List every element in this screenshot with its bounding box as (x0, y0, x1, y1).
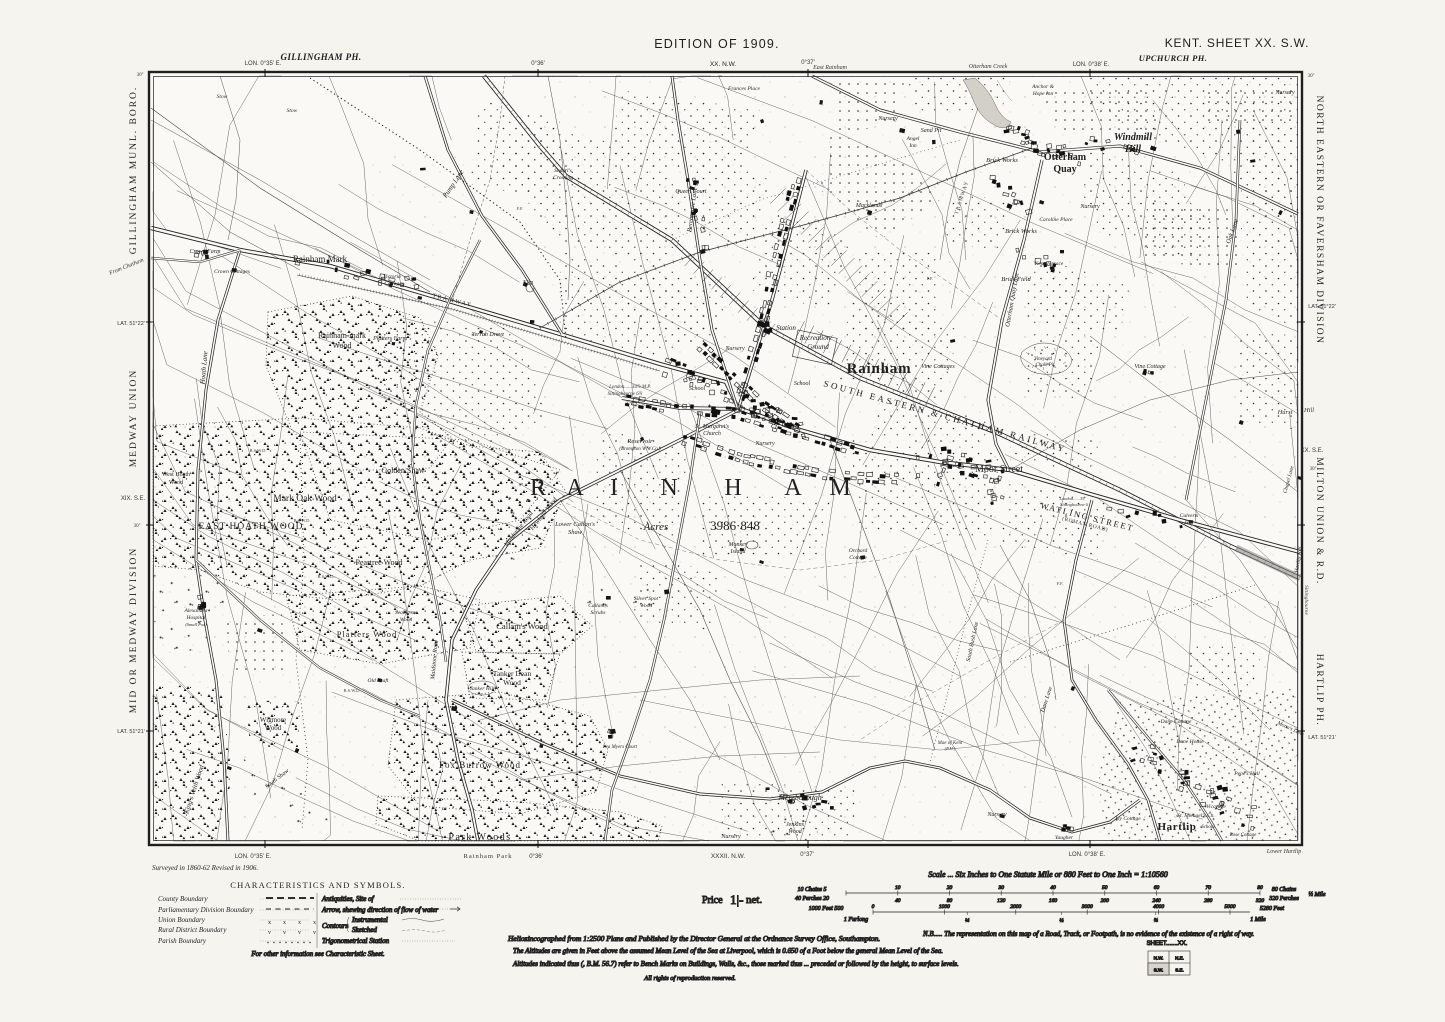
svg-text:4000: 4000 (1153, 903, 1164, 910)
svg-text:Hill: Hill (1184, 520, 1194, 526)
svg-text:Rainham-mark: Rainham-mark (318, 331, 366, 340)
svg-text:Rainham Park: Rainham Park (463, 853, 512, 860)
svg-text:N: N (660, 475, 677, 501)
svg-text:EDITION OF 1909.: EDITION OF 1909. (654, 37, 779, 51)
svg-text:Parish Boundary: Parish Boundary (157, 937, 207, 945)
svg-text:Hospital: Hospital (186, 615, 206, 621)
svg-text:Lea Myers Court: Lea Myers Court (602, 745, 638, 750)
svg-text:Rainham Mark: Rainham Mark (293, 254, 348, 264)
svg-text:Tanker Hill: Tanker Hill (469, 686, 494, 692)
svg-text:Hartlip: Hartlip (1157, 821, 1196, 833)
svg-text:Tanker Dean: Tanker Dean (493, 669, 532, 678)
svg-text:Island: Island (730, 549, 747, 555)
svg-text:XXXII. N.W.: XXXII. N.W. (711, 853, 746, 860)
svg-text:Scale ... Six Inches to One St: Scale ... Six Inches to One Statute Mile… (928, 870, 1168, 879)
svg-text:2000: 2000 (1010, 904, 1021, 910)
svg-text:Monkey: Monkey (728, 542, 748, 548)
svg-text:H: H (724, 475, 741, 501)
svg-text:Nursery: Nursery (720, 834, 741, 840)
svg-text:Trigonometrical Station: Trigonometrical Station (322, 937, 390, 945)
svg-text:XIX. S.E.: XIX. S.E. (121, 496, 146, 502)
svg-text:MILTON UNION & R.D.: MILTON UNION & R.D. (1314, 457, 1324, 584)
svg-text:Old Shaft: Old Shaft (368, 677, 389, 684)
svg-text:280: 280 (1204, 898, 1213, 904)
svg-text:x: x (283, 920, 286, 926)
svg-text:EAST HOATH WOOD: EAST HOATH WOOD (199, 522, 304, 532)
svg-text:Contours: Contours (322, 922, 348, 930)
svg-text:½ Mile: ½ Mile (1309, 891, 1326, 898)
svg-text:30'': 30'' (134, 524, 141, 529)
svg-text:Parliamentary Division Boundar: Parliamentary Division Boundary (157, 906, 255, 914)
svg-text:Nursery: Nursery (1274, 90, 1295, 96)
svg-text:Union Boundary: Union Boundary (158, 916, 206, 924)
svg-text:Wigmore: Wigmore (260, 716, 286, 724)
svg-text:Chalk Pit: Chalk Pit (1035, 363, 1055, 368)
svg-text:v: v (268, 930, 271, 936)
svg-text:The Altitudes are given in Fee: The Altitudes are given in Feet above th… (513, 947, 943, 955)
svg-text:1000 Feet 500: 1000 Feet 500 (809, 906, 844, 912)
svg-text:Reservoir: Reservoir (626, 438, 653, 445)
svg-text:Surveyed in 1860-62 Revised: Surveyed in 1860-62 Revised in 1906. (152, 864, 258, 872)
svg-text:Nursery: Nursery (754, 441, 775, 447)
svg-text:F.F.: F.F. (1057, 581, 1064, 586)
svg-text:Scrubs: Scrubs (591, 610, 606, 616)
svg-text:¾: ¾ (1154, 918, 1158, 924)
svg-text:LON. 0°38' E.: LON. 0°38' E. (1073, 62, 1110, 68)
svg-text:SHEET.......XX.: SHEET.......XX. (1147, 941, 1188, 947)
svg-text:Yaugher: Yaugher (1055, 835, 1074, 841)
svg-text:200: 200 (1101, 898, 1110, 904)
svg-text:0°37': 0°37' (800, 852, 814, 858)
svg-text:Wood: Wood (400, 617, 413, 623)
svg-text:Stow: Stow (287, 108, 298, 114)
svg-text:40: 40 (895, 897, 901, 904)
svg-text:B.S.W.D.: B.S.W.D. (343, 688, 360, 693)
svg-text:net.: net. (746, 894, 762, 906)
svg-text:Brick Works: Brick Works (986, 157, 1018, 164)
svg-text:Inn: Inn (908, 143, 917, 149)
svg-text:80 Chains: 80 Chains (1272, 887, 1297, 893)
svg-text:For other information see Char: For other information see Characteristic… (250, 950, 385, 958)
svg-text:Rainham: Rainham (847, 361, 912, 377)
svg-text:Hurst: Hurst (1277, 409, 1293, 416)
svg-text:Lower Hartlip: Lower Hartlip (1266, 849, 1302, 855)
svg-text:Seabarres: Seabarres (395, 610, 417, 616)
svg-text:A: A (784, 475, 802, 501)
svg-text:Wood: Wood (503, 678, 521, 687)
svg-text:XX. S.E.: XX. S.E. (1301, 448, 1324, 454)
svg-text:B.S.W.D.: B.S.W.D. (317, 574, 334, 579)
svg-text:London......35: London......35 (1058, 496, 1085, 501)
svg-text:½: ½ (1059, 917, 1063, 924)
svg-text:Nursery: Nursery (1079, 204, 1100, 210)
svg-text:School: School (794, 381, 811, 387)
svg-text:Sittingbourne 6¾: Sittingbourne 6¾ (608, 392, 643, 397)
svg-text:Moor Street: Moor Street (975, 464, 1023, 475)
svg-text:Wood: Wood (265, 724, 282, 732)
svg-text:1|-: 1|- (730, 892, 743, 907)
svg-text:Station: Station (776, 324, 796, 332)
svg-text:5000: 5000 (1225, 904, 1236, 910)
svg-text:Platters Wood: Platters Wood (337, 629, 398, 639)
svg-text:Wood: Wood (640, 603, 653, 609)
svg-text:70: 70 (1205, 885, 1211, 891)
svg-text:St. Michael's Ch.: St. Michael's Ch. (1177, 813, 1215, 819)
svg-text:320 Perches: 320 Perches (1268, 896, 1299, 902)
svg-text:Antiquities, Site of: Antiquities, Site of (321, 895, 375, 903)
svg-text:¼: ¼ (965, 918, 969, 924)
svg-text:1 Mile: 1 Mile (1250, 917, 1266, 923)
svg-text:Victoria: Victoria (383, 274, 401, 280)
svg-text:30'': 30'' (137, 73, 144, 78)
svg-text:Stow: Stow (217, 94, 228, 100)
svg-text:Silver Spot: Silver Spot (634, 596, 658, 602)
svg-text:School: School (689, 386, 706, 392)
svg-text:Crown Farm: Crown Farm (190, 249, 222, 255)
svg-text:160: 160 (1049, 898, 1058, 904)
svg-text:Fox Burrow Wood: Fox Burrow Wood (439, 760, 521, 770)
svg-text:LAT. 51°21': LAT. 51°21' (117, 729, 145, 735)
svg-text:40 Perches 20: 40 Perches 20 (795, 895, 829, 902)
svg-text:LON. 0°38' E.: LON. 0°38' E. (1069, 852, 1106, 858)
svg-text:Dane Cottage: Dane Cottage (1160, 719, 1192, 725)
svg-text:240: 240 (1152, 897, 1161, 904)
svg-text:Anchor &: Anchor & (1031, 84, 1055, 90)
svg-text:320: 320 (1255, 898, 1265, 904)
svg-text:Cottage: Cottage (849, 555, 867, 561)
svg-text:LON. 0°35' E.: LON. 0°35' E. (235, 854, 272, 860)
svg-text:N.B..... The representation on: N.B..... The representation on this map … (922, 930, 1254, 938)
svg-text:Sketched: Sketched (352, 926, 377, 934)
svg-text:MEDWAY UNION: MEDWAY UNION (129, 369, 139, 468)
svg-text:County Boundary: County Boundary (158, 895, 208, 903)
svg-text:Wood: Wood (169, 480, 183, 486)
svg-text:Jenkins: Jenkins (786, 822, 805, 828)
svg-text:F.F.: F.F. (517, 206, 524, 211)
svg-text:30: 30 (997, 885, 1004, 891)
svg-text:Price: Price (702, 895, 723, 906)
svg-text:v: v (298, 930, 301, 936)
svg-text:Vine Cottages: Vine Cottages (921, 364, 955, 370)
svg-text:Culverts: Culverts (1180, 513, 1199, 519)
svg-text:School: School (1201, 825, 1215, 830)
svg-text:Rural District Boundary: Rural District Boundary (157, 926, 227, 934)
svg-text:v: v (283, 930, 286, 936)
svg-text:0°36': 0°36' (531, 61, 545, 67)
svg-text:1000: 1000 (939, 904, 950, 910)
svg-text:Church: Church (703, 431, 721, 437)
svg-text:10: 10 (895, 885, 901, 891)
svg-text:Snaerl's: Snaerl's (554, 168, 572, 174)
svg-text:West Hoath: West Hoath (162, 472, 190, 478)
svg-text:Windmill: Windmill (1114, 132, 1152, 143)
svg-text:Heliozincographed from 1:2500: Heliozincographed from 1:2500 Plans and … (507, 934, 880, 943)
svg-text:60: 60 (1154, 885, 1160, 891)
svg-text:GILLINGHAM MUNL. BORO.: GILLINGHAM MUNL. BORO. (129, 86, 139, 255)
svg-text:Queen Court: Queen Court (675, 189, 706, 195)
svg-text:Mereborough: Mereborough (777, 793, 821, 802)
svg-text:30'': 30'' (1308, 74, 1315, 79)
svg-text:5280 Feet: 5280 Feet (1260, 906, 1284, 912)
svg-text:80: 80 (1257, 885, 1263, 891)
svg-text:(P.H.): (P.H.) (945, 746, 956, 751)
svg-text:Quay: Quay (1053, 164, 1076, 175)
svg-text:40: 40 (1050, 884, 1056, 891)
svg-text:A: A (566, 475, 584, 501)
svg-text:Peartree Wood: Peartree Wood (356, 558, 403, 567)
svg-text:MID OR MEDWAY DIVISION: MID OR MEDWAY DIVISION (129, 547, 139, 714)
svg-text:Caroline Place: Caroline Place (1039, 217, 1073, 223)
svg-text:Vicarage: Vicarage (1206, 804, 1226, 810)
svg-text:50: 50 (1102, 885, 1108, 891)
svg-text:Vineyard: Vineyard (1034, 357, 1052, 362)
svg-text:(Small Pox): (Small Pox) (185, 622, 207, 627)
svg-text:I: I (610, 475, 618, 501)
svg-text:Crown Cottages: Crown Cottages (214, 269, 250, 275)
svg-text:Platters Farm: Platters Farm (372, 336, 407, 342)
svg-text:GILLINGHAM PH.: GILLINGHAM PH. (280, 52, 361, 62)
svg-text:London......34¾ M.P.: London......34¾ M.P. (608, 385, 651, 390)
svg-text:Sand Pit: Sand Pit (921, 128, 942, 134)
svg-text:Sittingbourne: Sittingbourne (1303, 585, 1309, 616)
svg-text:Ivy Cottage: Ivy Cottage (1114, 816, 1141, 822)
svg-text:KENT. SHEET XX. S.W.: KENT. SHEET XX. S.W. (1165, 36, 1309, 50)
svg-text:Shaw: Shaw (568, 529, 583, 536)
svg-text:0°36': 0°36' (529, 854, 543, 860)
svg-text:0: 0 (872, 904, 875, 910)
svg-text:3000: 3000 (1081, 904, 1093, 910)
svg-text:Angel: Angel (906, 136, 920, 142)
svg-text:HARTLIP PH.: HARTLIP PH. (1314, 654, 1324, 727)
svg-text:(Brompton W.W.Co.): (Brompton W.W.Co.) (619, 447, 661, 452)
svg-text:3986·848: 3986·848 (710, 518, 760, 533)
svg-text:Orchard: Orchard (849, 548, 868, 554)
svg-text:v: v (313, 930, 316, 936)
svg-text:Pepe's Hall: Pepe's Hall (1233, 771, 1260, 777)
svg-text:Nursery: Nursery (724, 346, 745, 352)
svg-text:Callam's Wood: Callam's Wood (496, 621, 548, 631)
svg-text:XX. N.W.: XX. N.W. (710, 61, 737, 68)
svg-text:Park Woods: Park Woods (448, 832, 511, 843)
svg-text:Otterham Creek: Otterham Creek (969, 64, 1008, 70)
svg-text:B.S.W.D.: B.S.W.D. (249, 448, 266, 453)
svg-text:x: x (298, 920, 301, 926)
svg-text:All rights of reproduction res: All rights of reproduction reserved. (643, 975, 736, 982)
svg-text:Cottages: Cottages (384, 281, 404, 287)
svg-text:Dane House: Dane House (1175, 739, 1204, 745)
svg-text:St. Margaret's: St. Margaret's (695, 424, 730, 430)
svg-text:UPCHURCH PH.: UPCHURCH PH. (1139, 53, 1208, 63)
svg-text:Wood: Wood (333, 341, 352, 350)
svg-text:CHARACTERISTICS AND SYMBOLS.: CHARACTERISTICS AND SYMBOLS. (230, 880, 406, 890)
svg-text:Nursery: Nursery (877, 116, 898, 122)
svg-text:Golden Shaw: Golden Shaw (381, 466, 425, 475)
svg-text:LAT. 51°21': LAT. 51°21' (1308, 735, 1336, 741)
svg-text:Mark Oak Wood: Mark Oak Wood (273, 494, 337, 504)
svg-text:Macklands: Macklands (855, 203, 883, 209)
svg-text:Wood: Wood (788, 829, 802, 835)
svg-text:Sittingbourne 6: Sittingbourne 6 (1060, 502, 1089, 507)
svg-text:Frances Place: Frances Place (727, 86, 760, 92)
svg-text:Arrow, shewing direction of fl: Arrow, shewing direction of flow of wate… (321, 906, 438, 914)
svg-text:Alexandra: Alexandra (184, 608, 208, 614)
svg-text:Hill: Hill (1303, 407, 1314, 414)
svg-text:Recreation: Recreation (799, 334, 831, 342)
svg-text:x: x (313, 920, 316, 926)
svg-text:Yerrah Drove: Yerrah Drove (472, 332, 505, 338)
svg-text:10 Chains 5: 10 Chains 5 (797, 887, 826, 893)
svg-text:East Rainham: East Rainham (812, 65, 847, 71)
svg-text:1 Furlong: 1 Furlong (844, 917, 868, 923)
svg-text:N.W.: N.W. (1154, 956, 1164, 961)
svg-text:N.E.: N.E. (1175, 956, 1184, 961)
svg-text:Rose Cottage: Rose Cottage (1229, 833, 1258, 838)
svg-text:20: 20 (947, 885, 953, 891)
svg-text:Nursery: Nursery (986, 812, 1007, 818)
svg-text:Altitudes indicated thus (, B.: Altitudes indicated thus (, B.M. 56.7) r… (512, 960, 959, 968)
svg-text:x: x (268, 920, 271, 926)
svg-text:Brick Works: Brick Works (1005, 228, 1037, 235)
svg-text:R: R (530, 475, 546, 501)
svg-text:Ground: Ground (807, 343, 829, 351)
svg-text:M: M (829, 475, 850, 501)
svg-text:LAT. 51°22': LAT. 51°22' (1308, 304, 1336, 310)
svg-text:LAT. 51°22': LAT. 51°22' (117, 321, 145, 327)
svg-text:S.E.: S.E. (1175, 968, 1184, 973)
svg-text:Vine Cottage: Vine Cottage (1134, 364, 1165, 370)
svg-text:Hope Inn: Hope Inn (1032, 91, 1054, 97)
svg-text:120: 120 (997, 898, 1006, 904)
svg-text:Instrumental: Instrumental (351, 916, 388, 924)
svg-text:Kent Terrace: Kent Terrace (1034, 261, 1064, 267)
svg-text:LON. 0°35' E.: LON. 0°35' E. (245, 61, 282, 67)
svg-text:Acres: Acres (643, 521, 669, 533)
svg-text:Hill: Hill (1124, 144, 1141, 155)
svg-text:Crossing: Crossing (553, 175, 573, 181)
svg-text:Otterham: Otterham (1044, 152, 1087, 163)
svg-text:F.F.: F.F. (927, 276, 934, 281)
svg-text:Brick Field: Brick Field (1001, 276, 1031, 283)
svg-text:Lower Callan's: Lower Callan's (554, 521, 595, 528)
svg-text:S.W.: S.W. (1154, 968, 1164, 973)
svg-text:Callam's: Callam's (588, 603, 608, 609)
